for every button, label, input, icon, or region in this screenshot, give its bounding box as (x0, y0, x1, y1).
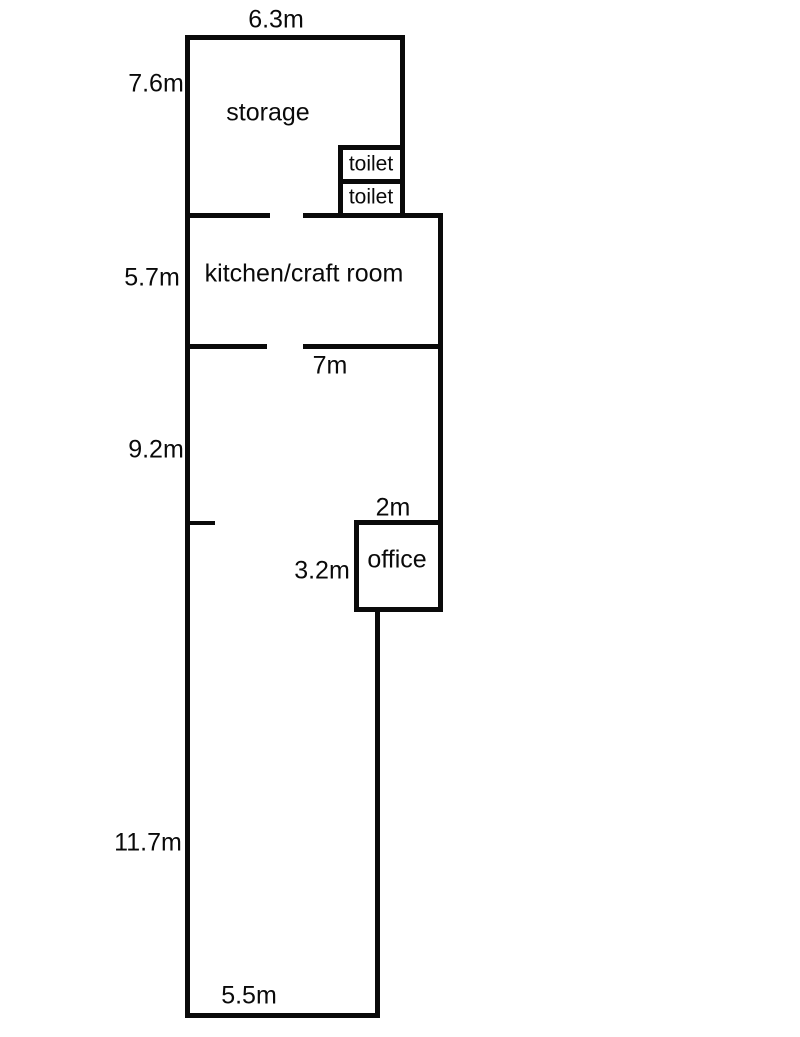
outer-right-wall-lower (375, 607, 380, 1018)
outer-right-wall-upper (438, 213, 443, 612)
room-toilet-upper: toilet (349, 154, 393, 175)
office-left-wall (354, 520, 359, 612)
dim-storage-height: 7.6m (128, 72, 184, 97)
storage-right-wall (400, 35, 405, 218)
dim-office-width: 2m (376, 496, 411, 521)
room-toilet-lower: toilet (349, 187, 393, 208)
storage-kitchen-wall-left (185, 213, 270, 218)
dim-lower-height: 11.7m (114, 831, 182, 856)
storage-kitchen-wall-right (303, 213, 443, 218)
toilet-divider-wall (338, 179, 405, 184)
outer-left-wall (185, 35, 190, 1018)
room-office: office (367, 548, 426, 573)
dim-storage-width: 6.3m (248, 8, 304, 33)
kitchen-bottom-wall-left (185, 344, 267, 349)
kitchen-bottom-wall-right (303, 344, 443, 349)
toilet-top-wall (338, 145, 405, 150)
dim-kitchen-height: 5.7m (124, 266, 180, 291)
outer-top-wall (185, 35, 405, 40)
outer-bottom-wall (185, 1013, 380, 1018)
dim-office-height: 3.2m (294, 559, 350, 584)
left-stub-wall (190, 521, 215, 525)
room-storage: storage (226, 101, 309, 126)
dim-kitchen-width: 7m (313, 354, 348, 379)
office-bottom-wall (354, 607, 443, 612)
dim-middle-height: 9.2m (128, 438, 184, 463)
floorplan-canvas: 6.3m7.6mstoragetoilettoilet5.7mkitchen/c… (0, 0, 800, 1037)
dim-bottom-width: 5.5m (221, 984, 277, 1009)
room-kitchen: kitchen/craft room (205, 262, 404, 287)
